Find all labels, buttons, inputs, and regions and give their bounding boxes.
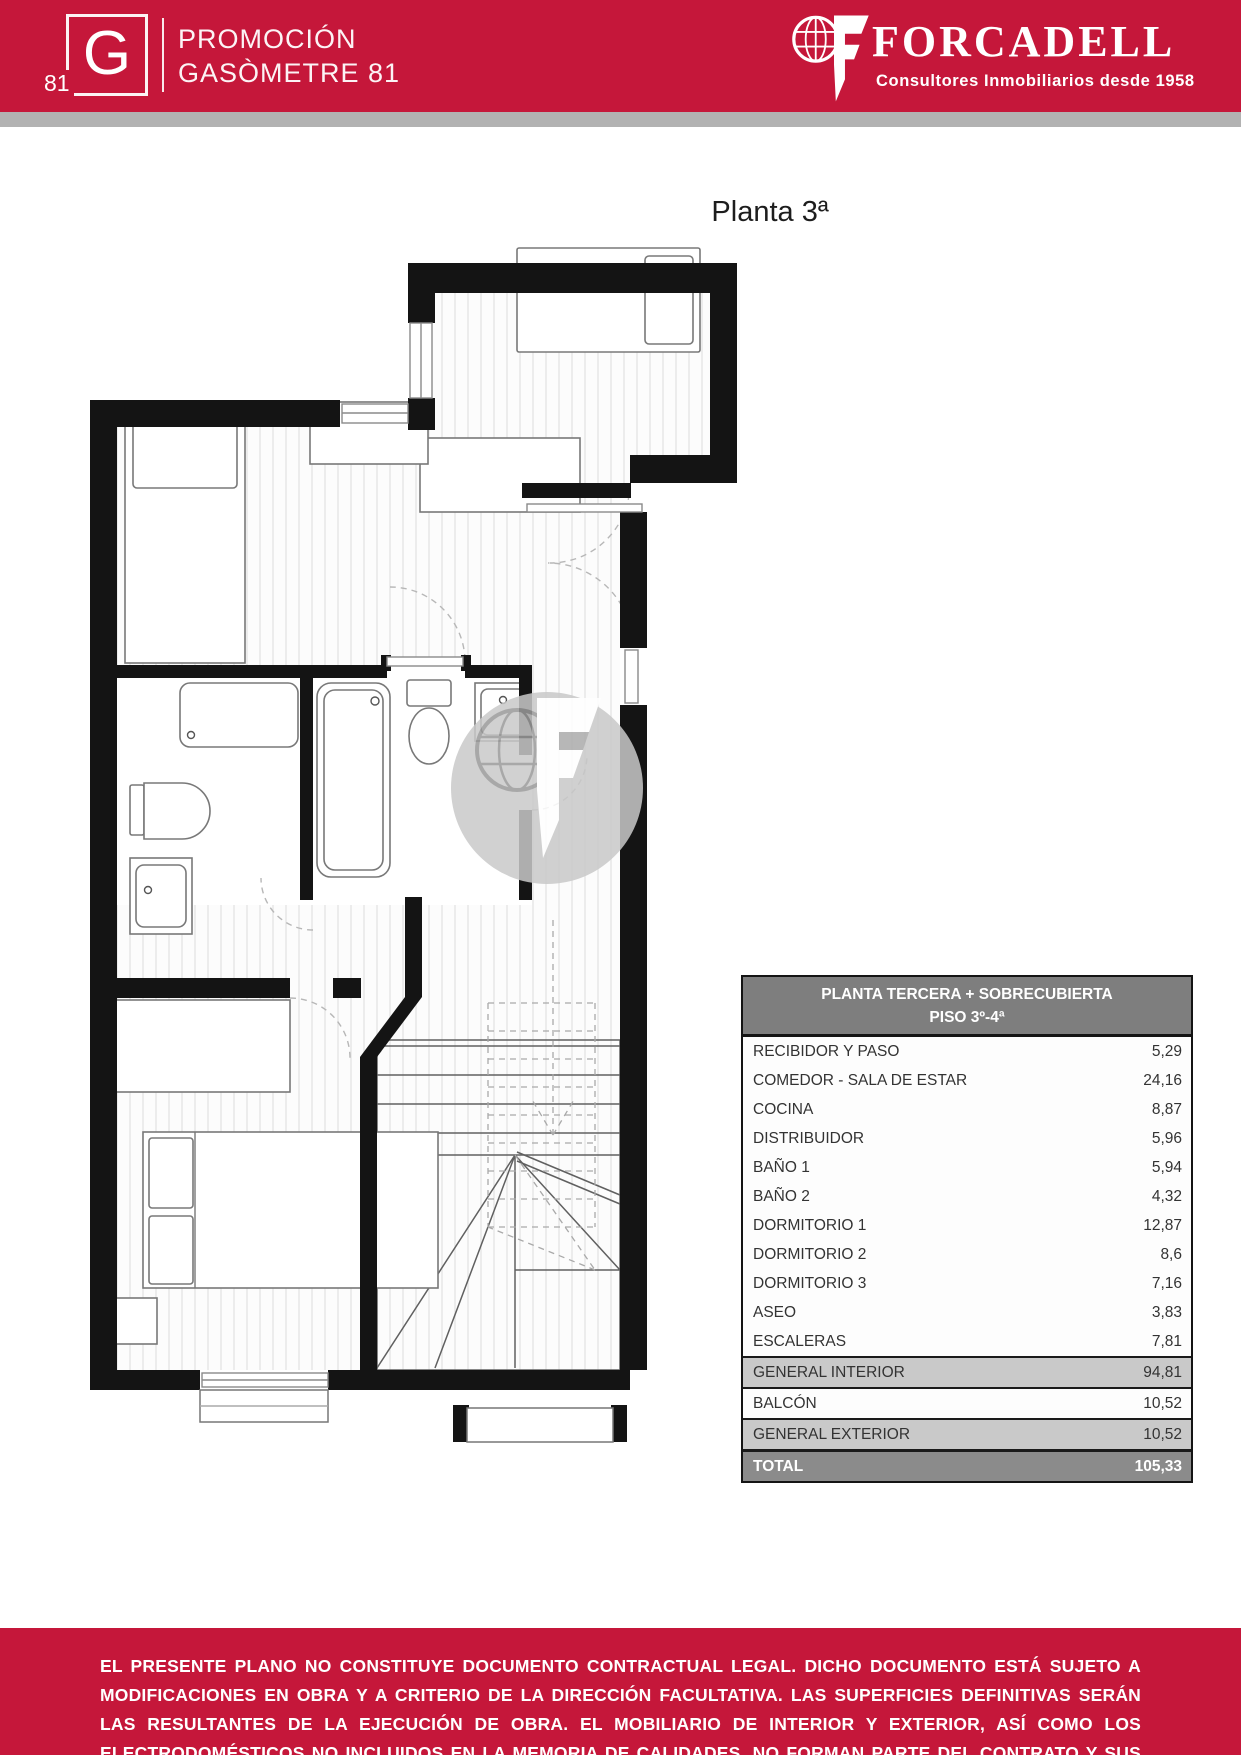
room-label: COCINA — [753, 1101, 813, 1119]
table-row: DORMITORIO 1 12,87 — [743, 1211, 1191, 1240]
room-label: ESCALERAS — [753, 1333, 846, 1351]
room-area-value: 8,6 — [1160, 1246, 1182, 1264]
company-name: FORCADELL — [872, 16, 1175, 67]
table-row: ESCALERAS 7,81 — [743, 1327, 1191, 1356]
promotion-line2: GASÒMETRE 81 — [178, 56, 400, 90]
table-row: TOTAL 105,33 — [743, 1451, 1191, 1481]
table-row: BALCÓN 10,52 — [743, 1389, 1191, 1418]
room-area-value: 8,87 — [1152, 1101, 1182, 1119]
table-row: DORMITORIO 2 8,6 — [743, 1240, 1191, 1269]
table-row: BAÑO 2 4,32 — [743, 1182, 1191, 1211]
table-title-line1: PLANTA TERCERA + SOBRECUBIERTA — [747, 983, 1187, 1006]
room-area-value: 5,96 — [1152, 1130, 1182, 1148]
promotion-line1: PROMOCIÓN — [178, 22, 400, 56]
room-label: RECIBIDOR Y PASO — [753, 1043, 899, 1061]
room-area-value: 5,29 — [1152, 1043, 1182, 1061]
room-area-value: 105,33 — [1135, 1458, 1182, 1476]
room-area-value: 4,32 — [1152, 1188, 1182, 1206]
room-label: BAÑO 2 — [753, 1188, 810, 1206]
footer-banner: EL PRESENTE PLANO NO CONSTITUYE DOCUMENT… — [0, 1628, 1241, 1755]
room-area-value: 24,16 — [1143, 1072, 1182, 1090]
globe-f-icon — [788, 10, 880, 105]
room-label: BALCÓN — [753, 1395, 817, 1413]
room-label: DORMITORIO 1 — [753, 1217, 866, 1235]
gasometre-logo: G — [66, 14, 148, 96]
logo-number: 81 — [40, 70, 74, 96]
table-row: COCINA 8,87 — [743, 1095, 1191, 1124]
legal-disclaimer: EL PRESENTE PLANO NO CONSTITUYE DOCUMENT… — [100, 1652, 1141, 1755]
room-area-value: 7,16 — [1152, 1275, 1182, 1293]
room-label: DISTRIBUIDOR — [753, 1130, 864, 1148]
room-area-value: 3,83 — [1152, 1304, 1182, 1322]
room-label: GENERAL INTERIOR — [753, 1364, 905, 1382]
table-row: COMEDOR - SALA DE ESTAR 24,16 — [743, 1066, 1191, 1095]
table-row: ASEO 3,83 — [743, 1298, 1191, 1327]
room-area-value: 5,94 — [1152, 1159, 1182, 1177]
promotion-name: PROMOCIÓN GASÒMETRE 81 — [178, 22, 400, 90]
room-label: ASEO — [753, 1304, 796, 1322]
divider-bar — [0, 112, 1241, 127]
room-label: GENERAL EXTERIOR — [753, 1426, 910, 1444]
table-row: GENERAL INTERIOR 94,81 — [743, 1356, 1191, 1389]
room-label: TOTAL — [753, 1458, 803, 1476]
room-area-value: 12,87 — [1143, 1217, 1182, 1235]
header-banner: G 81 PROMOCIÓN GASÒMETRE 81 FORCADELL Co… — [0, 0, 1241, 112]
table-row: DISTRIBUIDOR 5,96 — [743, 1124, 1191, 1153]
room-area-value: 94,81 — [1143, 1364, 1182, 1382]
table-row: BAÑO 1 5,94 — [743, 1153, 1191, 1182]
room-label: COMEDOR - SALA DE ESTAR — [753, 1072, 967, 1090]
table-row: DORMITORIO 3 7,16 — [743, 1269, 1191, 1298]
room-area-value: 10,52 — [1143, 1426, 1182, 1444]
areas-table-header: PLANTA TERCERA + SOBRECUBIERTA PISO 3º-4… — [743, 977, 1191, 1037]
brand-separator — [162, 18, 164, 92]
room-label: DORMITORIO 3 — [753, 1275, 866, 1293]
room-label: DORMITORIO 2 — [753, 1246, 866, 1264]
room-area-value: 10,52 — [1143, 1395, 1182, 1413]
brochure-page: G 81 PROMOCIÓN GASÒMETRE 81 FORCADELL Co… — [0, 0, 1241, 1755]
company-tagline: Consultores Inmobiliarios desde 1958 — [876, 72, 1195, 91]
areas-table-body: RECIBIDOR Y PASO 5,29 COMEDOR - SALA DE … — [743, 1037, 1191, 1481]
areas-table: PLANTA TERCERA + SOBRECUBIERTA PISO 3º-4… — [741, 975, 1193, 1483]
floor-title: Planta 3ª — [640, 196, 900, 229]
table-row: GENERAL EXTERIOR 10,52 — [743, 1418, 1191, 1451]
room-area-value: 7,81 — [1152, 1333, 1182, 1351]
room-label: BAÑO 1 — [753, 1159, 810, 1177]
table-row: RECIBIDOR Y PASO 5,29 — [743, 1037, 1191, 1066]
floor-plan — [85, 230, 745, 1445]
watermark-logo — [451, 692, 643, 884]
balconies — [200, 1390, 613, 1442]
logo-letter: G — [69, 13, 145, 95]
table-title-line2: PISO 3º-4ª — [747, 1006, 1187, 1029]
